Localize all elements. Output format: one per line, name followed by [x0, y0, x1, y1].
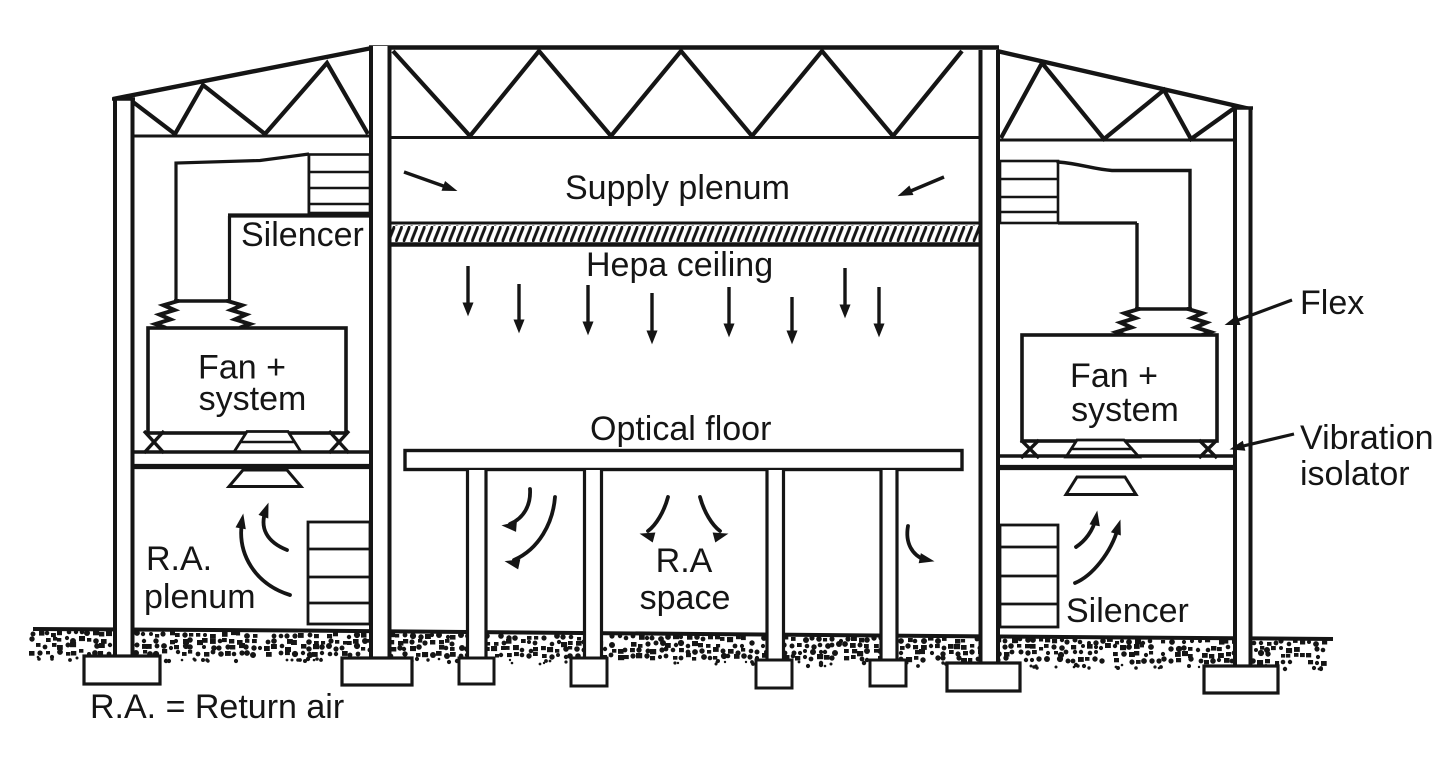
svg-text:R.A. = Return air: R.A. = Return air: [90, 688, 344, 726]
svg-text:Vibration: Vibration: [1300, 419, 1434, 457]
svg-text:Optical floor: Optical floor: [590, 410, 771, 448]
svg-text:Silencer: Silencer: [241, 216, 364, 254]
svg-text:Supply plenum: Supply plenum: [565, 169, 790, 207]
svg-text:system: system: [1071, 391, 1179, 429]
svg-text:Flex: Flex: [1300, 284, 1364, 322]
svg-text:Fan +: Fan +: [1070, 357, 1158, 395]
svg-text:R.A: R.A: [656, 542, 713, 580]
svg-text:system: system: [199, 380, 307, 418]
svg-text:Hepa ceiling: Hepa ceiling: [586, 246, 773, 284]
svg-text:R.A.: R.A.: [146, 540, 212, 578]
svg-text:Silencer: Silencer: [1066, 592, 1189, 630]
svg-text:space: space: [640, 579, 731, 617]
svg-text:plenum: plenum: [144, 578, 256, 616]
svg-text:isolator: isolator: [1300, 455, 1410, 493]
